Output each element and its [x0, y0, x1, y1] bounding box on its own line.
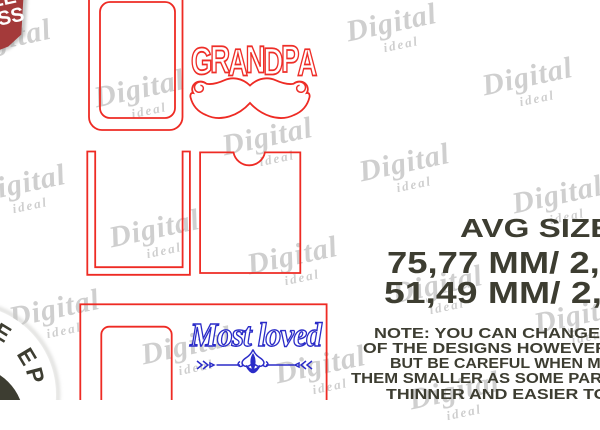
svg-text:Most loved: Most loved [189, 317, 323, 354]
svg-text:GRANDPA: GRANDPA [191, 39, 317, 85]
